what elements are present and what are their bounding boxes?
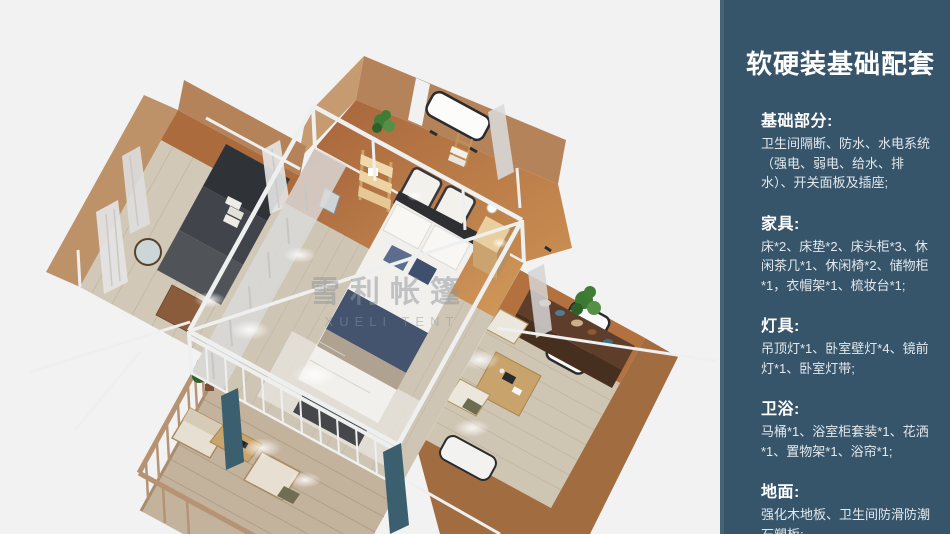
section-basics-heading: 基础部分: xyxy=(761,107,934,131)
section-furniture-body: 床*2、床垫*2、床头柜*3、休闲茶几*1、休闲椅*2、储物柜*1，衣帽架*1、… xyxy=(761,237,934,296)
section-bathroom-body: 马桶*1、浴室柜套装*1、花洒*1、置物架*1、浴帘*1; xyxy=(761,422,934,461)
floorplan-render-area: 雪利帐篷 XUELI TENT xyxy=(0,0,720,534)
panel-sections: 基础部分: 卫生间隔断、防水、水电系统（强电、弱电、给水、排水）、开关面板及插座… xyxy=(746,107,934,534)
info-panel: 软硬装基础配套 基础部分: 卫生间隔断、防水、水电系统（强电、弱电、给水、排水）… xyxy=(720,0,950,534)
section-flooring-heading: 地面: xyxy=(761,478,934,502)
section-lighting-heading: 灯具: xyxy=(761,312,934,336)
section-bathroom-heading: 卫浴: xyxy=(761,395,934,419)
watermark: 雪利帐篷 XUELI TENT xyxy=(310,276,470,329)
section-lighting-body: 吊顶灯*1、卧室壁灯*4、镜前灯*1、卧室灯带; xyxy=(761,339,934,378)
watermark-en: XUELI TENT xyxy=(325,314,460,329)
slide: 雪利帐篷 XUELI TENT 软硬装基础配套 基础部分: 卫生间隔断、防水、水… xyxy=(0,0,950,534)
section-lighting: 灯具: 吊顶灯*1、卧室壁灯*4、镜前灯*1、卧室灯带; xyxy=(761,312,934,378)
section-flooring-body: 强化木地板、卫生间防滑防潮石塑板; xyxy=(761,505,934,534)
round-mirror xyxy=(135,239,161,265)
panel-title: 软硬装基础配套 xyxy=(746,44,934,81)
section-flooring: 地面: 强化木地板、卫生间防滑防潮石塑板; xyxy=(761,478,934,534)
watermark-cn: 雪利帐篷 xyxy=(310,276,470,309)
section-basics-body: 卫生间隔断、防水、水电系统（强电、弱电、给水、排水）、开关面板及插座; xyxy=(761,134,934,193)
section-bathroom: 卫浴: 马桶*1、浴室柜套装*1、花洒*1、置物架*1、浴帘*1; xyxy=(761,395,934,461)
section-furniture-heading: 家具: xyxy=(761,210,934,234)
section-basics: 基础部分: 卫生间隔断、防水、水电系统（强电、弱电、给水、排水）、开关面板及插座… xyxy=(761,107,934,193)
section-furniture: 家具: 床*2、床垫*2、床头柜*3、休闲茶几*1、休闲椅*2、储物柜*1，衣帽… xyxy=(761,210,934,296)
floorplan-render: 雪利帐篷 XUELI TENT xyxy=(0,0,720,534)
